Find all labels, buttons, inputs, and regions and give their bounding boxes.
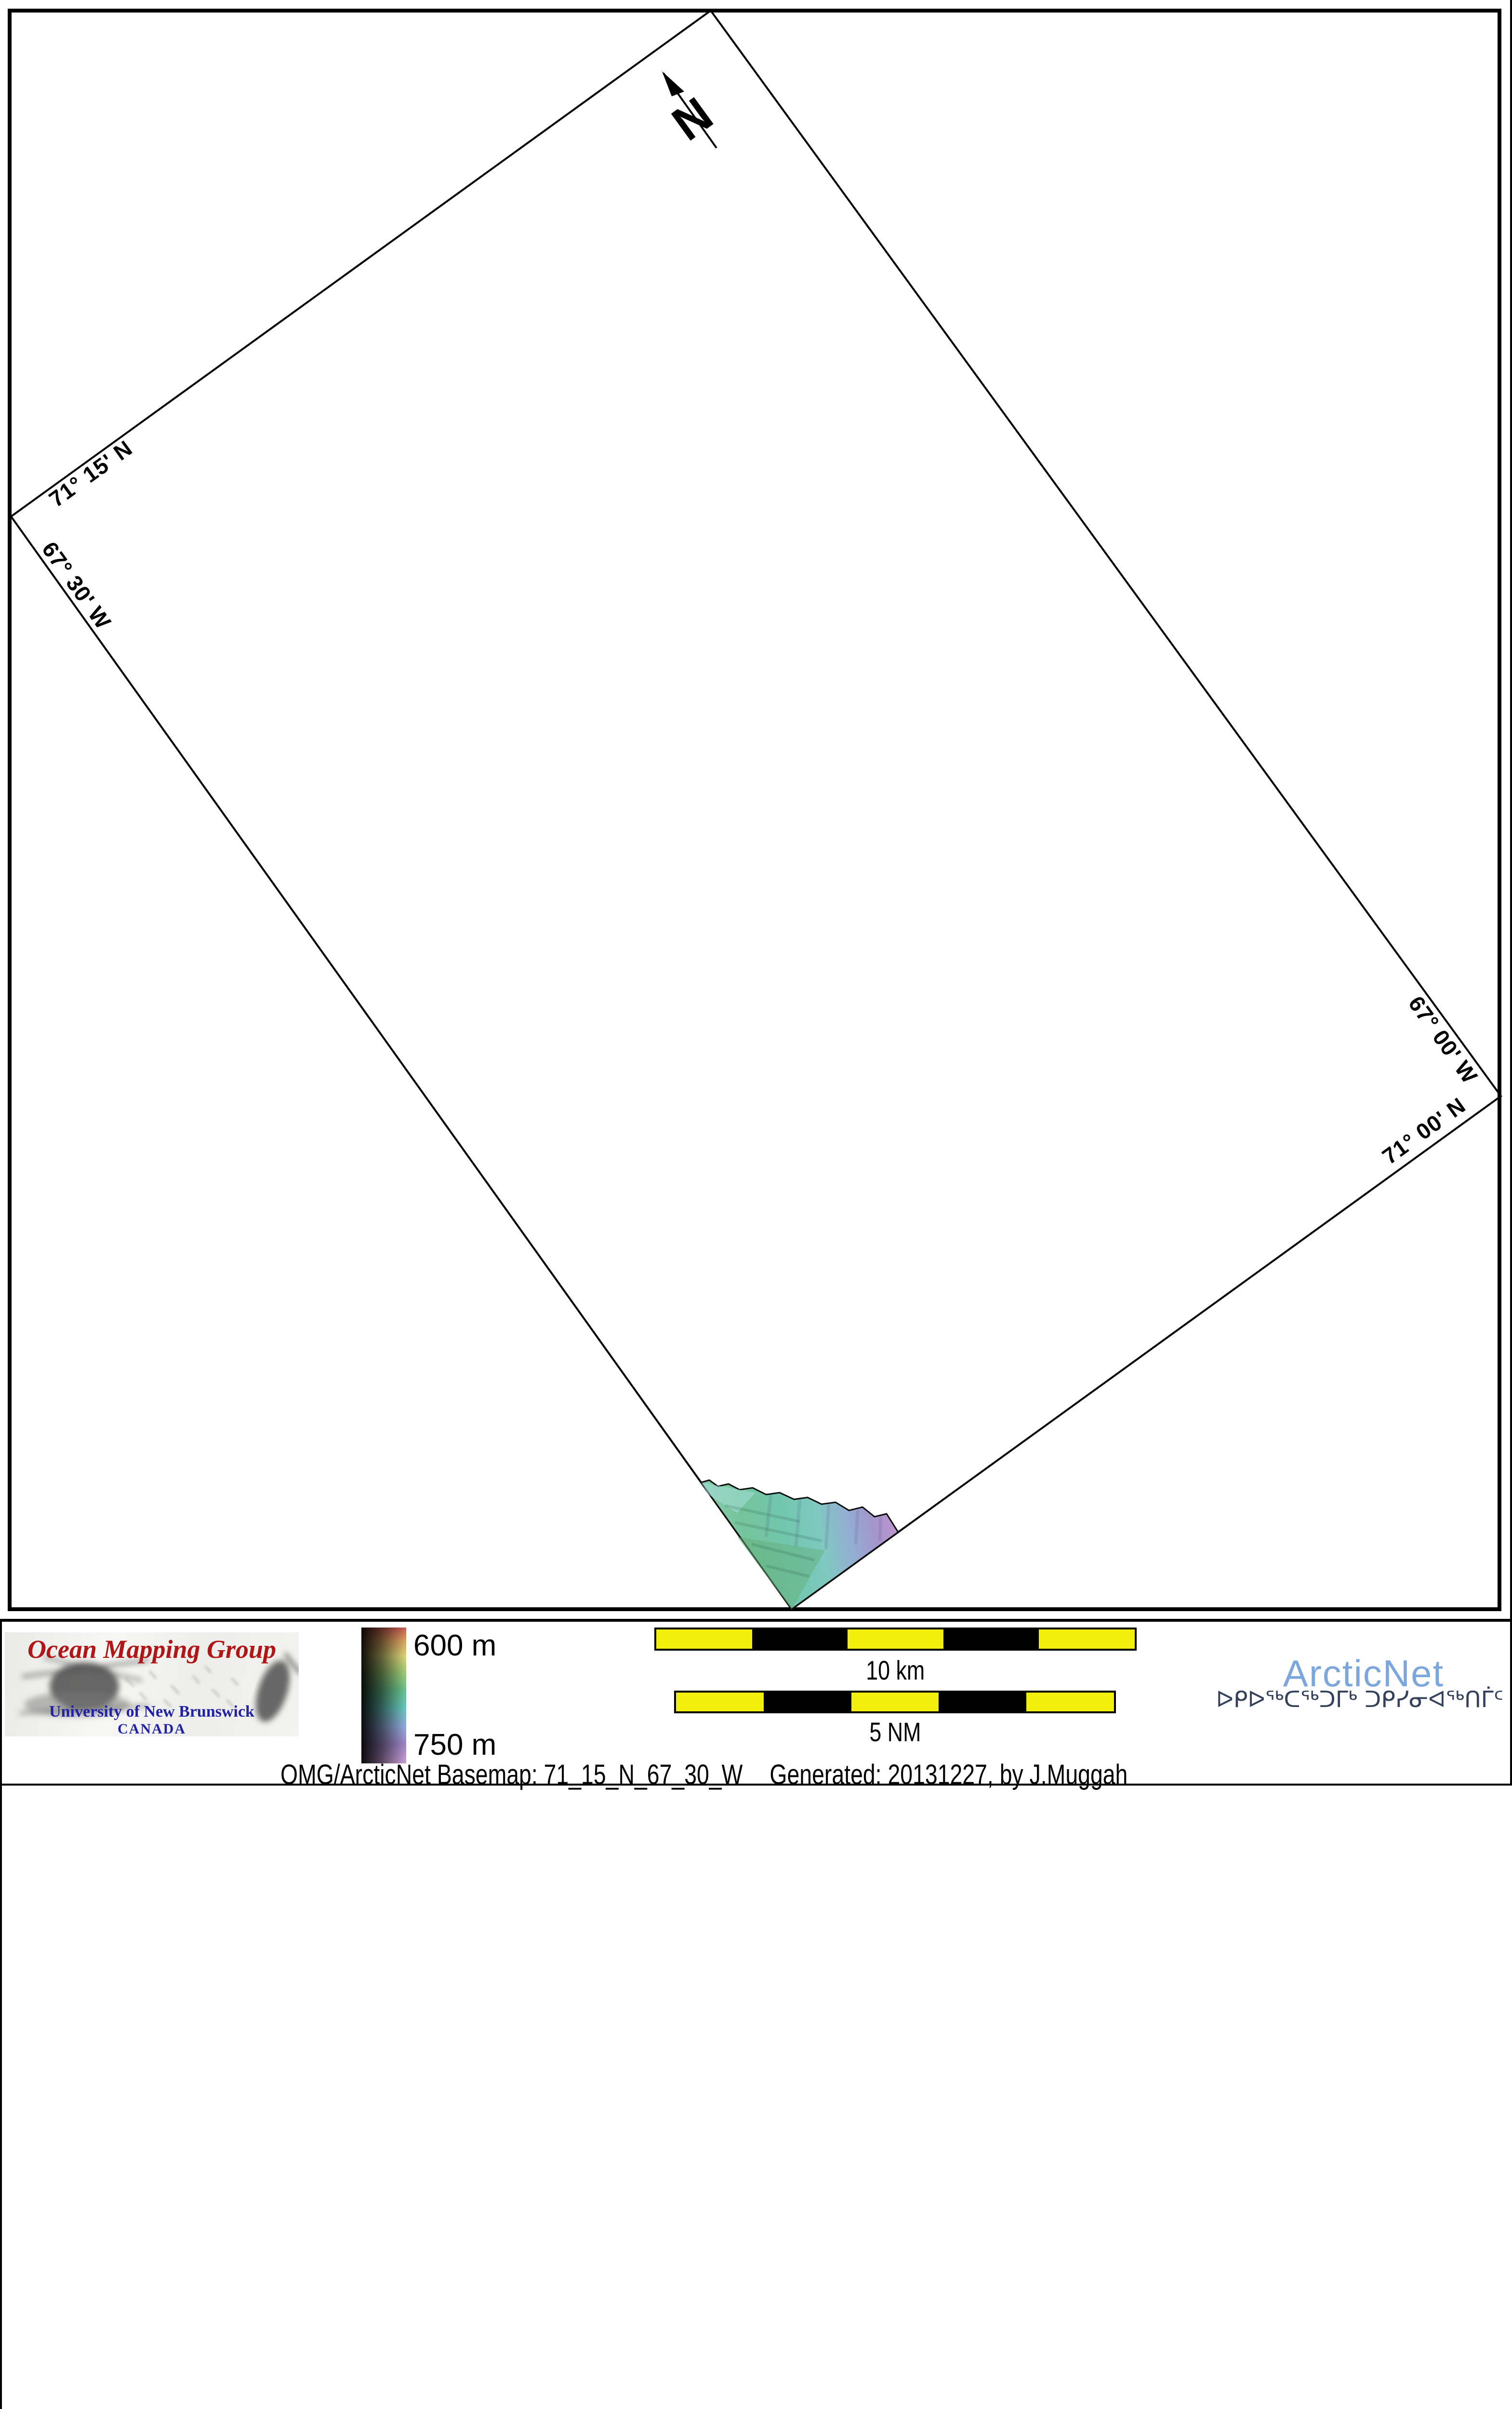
scalebar-segment xyxy=(943,1629,1039,1649)
bathymetry-swath xyxy=(701,1480,898,1609)
scalebar-segment xyxy=(1039,1629,1135,1649)
scalebar-segment xyxy=(676,1693,764,1711)
scalebar-10km xyxy=(654,1628,1137,1651)
omg-logo: Ocean Mapping Group University of New Br… xyxy=(5,1632,299,1736)
scalebar-5nm-label: 5 NM xyxy=(674,1716,1116,1747)
colorbar-bottom-label: 750 m xyxy=(413,1728,496,1762)
caption-basemap-id: OMG/ArcticNet Basemap: 71_15_N_67_30_W xyxy=(280,1759,743,1790)
omg-title: Ocean Mapping Group xyxy=(5,1634,299,1664)
north-arrow-head xyxy=(662,71,684,96)
scalebar-segment xyxy=(1026,1693,1114,1711)
scalebar-segment xyxy=(939,1693,1026,1711)
north-arrow-letter: N xyxy=(663,87,722,151)
scalebar-segment xyxy=(752,1629,848,1649)
map-neatline xyxy=(11,11,1501,1609)
depth-colorbar xyxy=(361,1628,406,1763)
omg-country: CANADA xyxy=(5,1721,299,1736)
north-arrow: N xyxy=(662,71,722,151)
scalebar-segment xyxy=(851,1693,939,1711)
map-canvas: N xyxy=(0,0,1512,1787)
arcticnet-inuktitut-text: ᐅᑭᐅᖅᑕᖅᑐᒥᒃ ᑐᑭᓯᓂᐊᖅᑎᒦᑦ xyxy=(1210,1686,1509,1713)
scalebar-segment xyxy=(656,1629,752,1649)
scalebar-segment xyxy=(848,1629,943,1649)
ice-texture-dashes xyxy=(125,1666,238,1707)
basemap-page: { "map": { "north_label": "N", "edge_lab… xyxy=(0,0,1512,1787)
omg-org: University of New Brunswick xyxy=(5,1703,299,1721)
caption-generated: Generated: 20131227, by J.Muggah xyxy=(769,1759,1127,1790)
colorbar-top-label: 600 m xyxy=(413,1628,496,1663)
scalebar-10km-label: 10 km xyxy=(654,1655,1137,1686)
basemap-caption: OMG/ArcticNet Basemap: 71_15_N_67_30_WGe… xyxy=(280,1759,1127,1791)
scalebar-5nm xyxy=(674,1691,1116,1713)
scalebar-segment xyxy=(764,1693,851,1711)
